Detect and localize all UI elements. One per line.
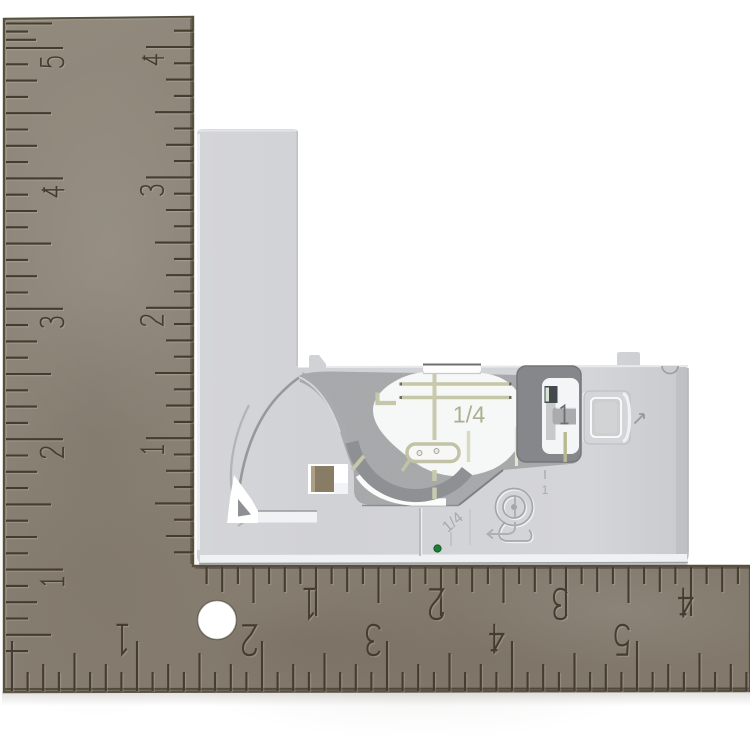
svg-text:1/4: 1/4 [453,402,486,428]
svg-text:1: 1 [542,483,549,497]
